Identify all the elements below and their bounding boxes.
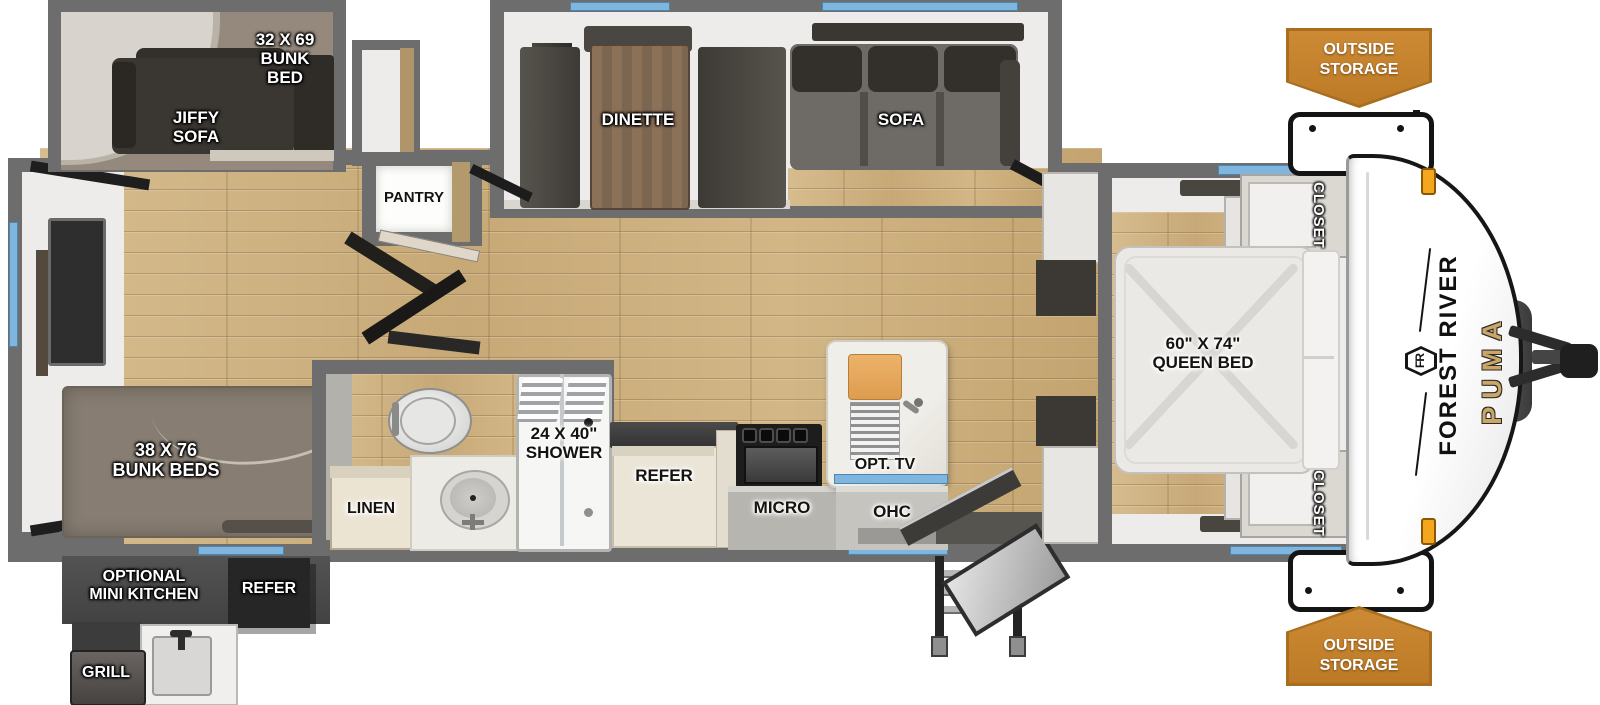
dinette-bench-right <box>698 47 786 208</box>
shower-label: 24 X 40" SHOWER <box>508 424 620 462</box>
kitchen-refer <box>612 446 718 548</box>
frame-bolt-2 <box>1397 125 1404 132</box>
floorplan-canvas: 32 X 69 BUNK BED JIFFY SOFA PANTRY DINET… <box>0 0 1600 705</box>
toilet-hinge <box>392 402 399 436</box>
grill-label: GRILL <box>70 664 142 682</box>
outside-storage-badge-top: OUTSIDE STORAGE <box>1286 28 1432 108</box>
ent-center-shelf-lower <box>1036 396 1096 446</box>
cap-inner-line <box>1366 172 1369 540</box>
sofa-headrest-1 <box>792 46 862 92</box>
outdoor-sink-faucet-stem <box>178 634 185 650</box>
tv-cabinet <box>36 250 48 376</box>
jiffy-sofa-label: JIFFY SOFA <box>146 108 246 146</box>
sofa-console <box>812 23 1024 41</box>
ohc-window <box>834 474 948 484</box>
lower-bunks-label: 38 X 76 BUNK BEDS <box>96 440 236 480</box>
ent-center-top-cabinet <box>1042 172 1100 264</box>
cutting-board <box>848 354 902 400</box>
badge-top-text: OUTSIDE STORAGE <box>1286 40 1432 80</box>
island-faucet-base <box>914 398 923 407</box>
badge-bottom-text: OUTSIDE STORAGE <box>1286 636 1432 676</box>
pantry-label: PANTRY <box>368 190 460 207</box>
bed-headboard <box>1302 250 1340 470</box>
logo-text: FR <box>1413 346 1427 376</box>
stove-knob-4 <box>793 428 808 443</box>
dinette-window <box>570 2 670 11</box>
marker-light-bottom <box>1421 518 1436 545</box>
mini-kitchen-label: OPTIONAL MINI KITCHEN <box>64 568 224 604</box>
wardrobe-box-interior <box>362 50 402 156</box>
jiffy-sofa-arm <box>112 62 136 148</box>
stove-knob-1 <box>742 428 757 443</box>
toilet-seat <box>400 397 456 445</box>
marker-light-top <box>1421 168 1436 195</box>
outdoor-refer-label: REFER <box>230 580 308 598</box>
hitch-coupler <box>1560 344 1598 378</box>
brand-maker-text: FOREST RIVER <box>1435 228 1463 482</box>
ent-center-shelf-upper <box>1036 260 1096 316</box>
micro-cabinet <box>728 486 836 550</box>
shower-drain-bottom <box>584 508 593 517</box>
brand-model-text: PUMA <box>1477 289 1507 449</box>
closet-bottom-label: CLOSET <box>1310 470 1327 540</box>
main-slide-wood-patch <box>788 168 1048 206</box>
vanity-faucet-stem <box>470 514 475 530</box>
sofa-arm-right <box>1000 60 1020 166</box>
step-foot-right <box>1009 636 1026 657</box>
step-foot-left <box>931 636 948 657</box>
bottom-window-bunks <box>198 546 284 555</box>
wardrobe-box-door <box>400 48 414 158</box>
sofa-window <box>822 2 1018 11</box>
bed-pillow-divider <box>1304 356 1334 359</box>
closet-top-panel <box>1248 182 1316 248</box>
dinette-bench-left <box>520 47 580 208</box>
stove-knob-2 <box>759 428 774 443</box>
sofa-label: SOFA <box>848 110 954 129</box>
queen-bed-label: 60" X 74" QUEEN BED <box>1128 334 1278 372</box>
upper-bunk-label: 32 X 69 BUNK BED <box>228 30 342 87</box>
shower-door-louvers-left <box>517 378 563 422</box>
outside-storage-badge-bottom: OUTSIDE STORAGE <box>1286 606 1432 686</box>
stove-knob-3 <box>776 428 791 443</box>
closet-top-label: CLOSET <box>1310 182 1327 252</box>
bedroom-wall <box>1098 165 1112 547</box>
micro-label: MICRO <box>730 498 834 517</box>
sofa-headrest-2 <box>868 46 938 92</box>
kitchen-refer-top <box>612 446 714 456</box>
rear-slide-window <box>9 222 18 347</box>
forest-river-logo-icon: FR <box>1405 346 1437 376</box>
dinette-label: DINETTE <box>586 110 690 129</box>
opt-tv-label: OPT. TV <box>826 456 944 474</box>
bunk-platform-edge <box>210 150 334 161</box>
frame-bolt-3 <box>1305 587 1312 594</box>
linen-cabinet-top <box>330 466 410 478</box>
kitchen-refer-label: REFER <box>612 466 716 485</box>
shower-door-louvers-right <box>563 378 607 422</box>
step-rail-left <box>935 556 944 638</box>
linen-label: LINEN <box>330 500 412 518</box>
rear-tv <box>48 218 106 366</box>
ent-center-bottom-cabinet <box>1042 446 1100 544</box>
stove-window <box>744 446 818 484</box>
frame-bolt-1 <box>1309 125 1316 132</box>
vanity-drain <box>470 495 476 501</box>
island-drying-rack <box>850 402 900 460</box>
frame-bolt-4 <box>1397 587 1404 594</box>
